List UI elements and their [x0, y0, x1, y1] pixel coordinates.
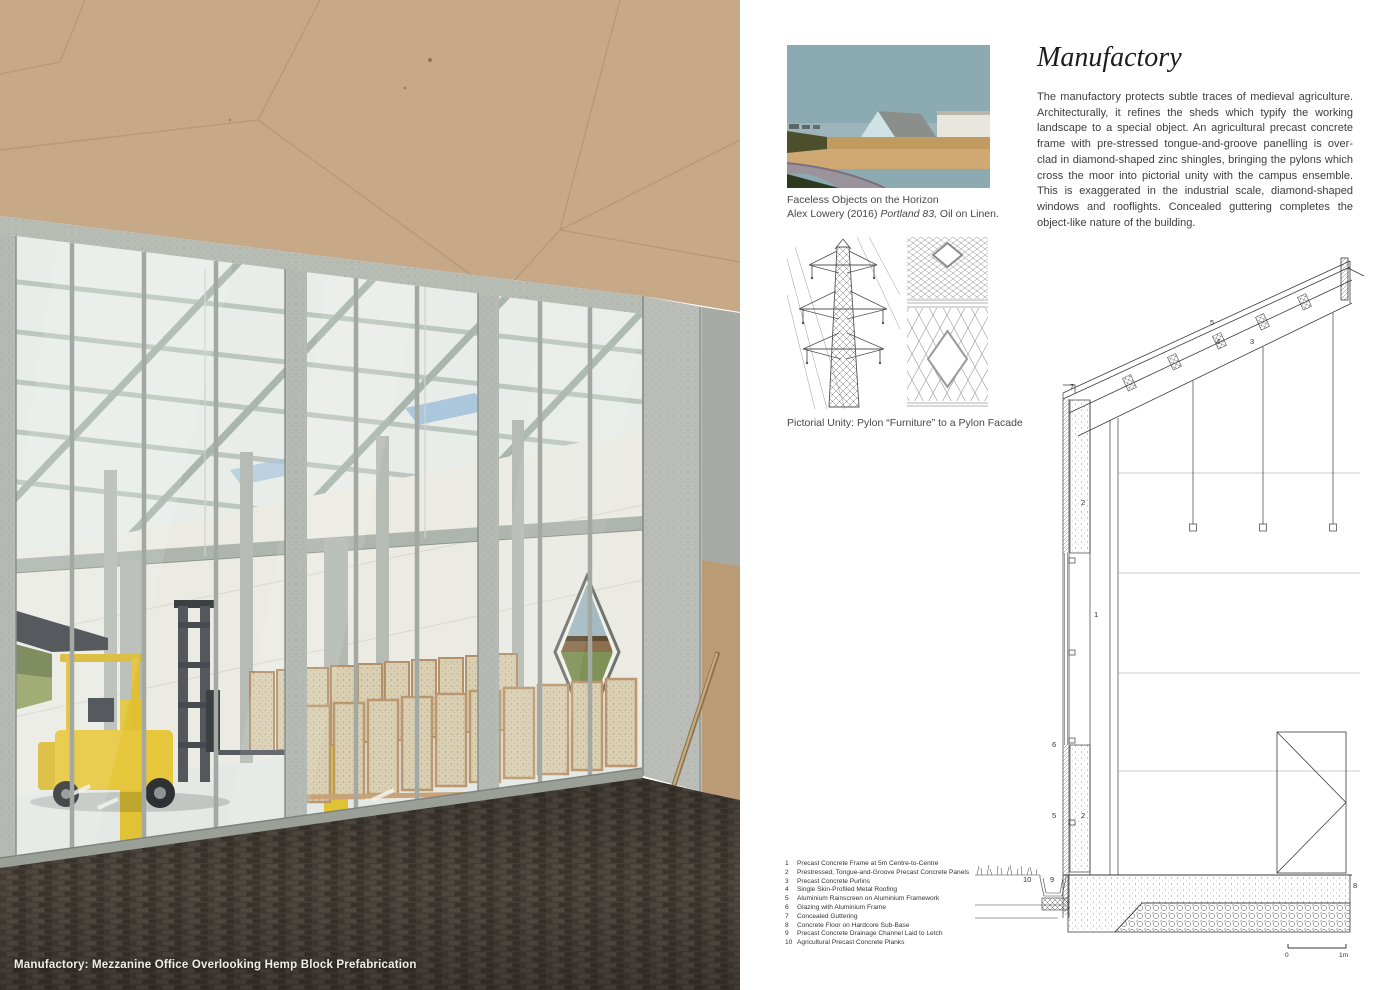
interior-rendering — [0, 0, 740, 990]
callout-1: 1 — [1094, 610, 1098, 619]
pylon-drawing — [787, 237, 900, 409]
callout-5b: 5 — [1052, 811, 1056, 820]
legend-row: 1Precast Concrete Frame at 5m Centre-to-… — [785, 860, 975, 868]
callout-10: 10 — [1023, 875, 1031, 884]
legend-row: 10Agricultural Precast Concrete Planks — [785, 939, 975, 947]
section-wall — [1063, 393, 1118, 918]
callout-7: 7 — [1070, 382, 1074, 391]
callout-4: 4 — [1216, 337, 1220, 346]
scale-zero: 0 — [1285, 952, 1289, 959]
legend-row: 9Precast Concrete Drainage Channel Laid … — [785, 930, 975, 938]
callout-2b: 2 — [1081, 811, 1085, 820]
painting-caption-line2: Alex Lowery (2016) Portland 83, Oil on L… — [787, 207, 1027, 221]
legend-row: 5Aluminium Rainscreen on Aluminium Frame… — [785, 895, 975, 903]
page-title: Manufactory — [1037, 42, 1182, 74]
scale-bar: 0 1m — [1285, 944, 1348, 959]
callout-2: 2 — [1081, 498, 1085, 507]
callout-5: 5 — [1210, 318, 1214, 327]
legend-row: 8Concrete Floor on Hardcore Sub-Base — [785, 922, 975, 930]
legend-row: 2Prestressed, Tongue-and-Groove Precast … — [785, 869, 975, 877]
section-door — [1277, 732, 1346, 873]
legend-row: 6Glazing with Aluminium Frame — [785, 904, 975, 912]
section-drawing: 5 4 3 7 2 1 6 5 2 10 9 8 0 1m — [960, 250, 1370, 960]
legend-row: 7Concealed Guttering — [785, 913, 975, 921]
painting-caption-line1: Faceless Objects on the Horizon — [787, 193, 1027, 207]
section-panel-joints — [1118, 473, 1360, 771]
legend-row: 3Precast Concrete Purlins — [785, 878, 975, 886]
legend-row: 4Single Skin-Profiled Metal Roofing — [785, 886, 975, 894]
callout-3: 3 — [1250, 337, 1254, 346]
callout-8: 8 — [1353, 881, 1357, 890]
portfolio-page: Manufactory: Mezzanine Office Overlookin… — [0, 0, 1400, 990]
section-roof — [1063, 258, 1364, 436]
scale-one-m: 1m — [1339, 952, 1348, 959]
painting-caption: Faceless Objects on the Horizon Alex Low… — [787, 193, 1027, 221]
body-text: The manufactory protects subtle traces o… — [1037, 90, 1353, 231]
callout-6: 6 — [1052, 740, 1056, 749]
callout-9: 9 — [1050, 875, 1054, 884]
section-legend: 1Precast Concrete Frame at 5m Centre-to-… — [785, 860, 975, 948]
painting-figure — [787, 45, 990, 188]
photo-caption: Manufactory: Mezzanine Office Overlookin… — [14, 959, 417, 971]
section-ground — [975, 865, 1352, 932]
